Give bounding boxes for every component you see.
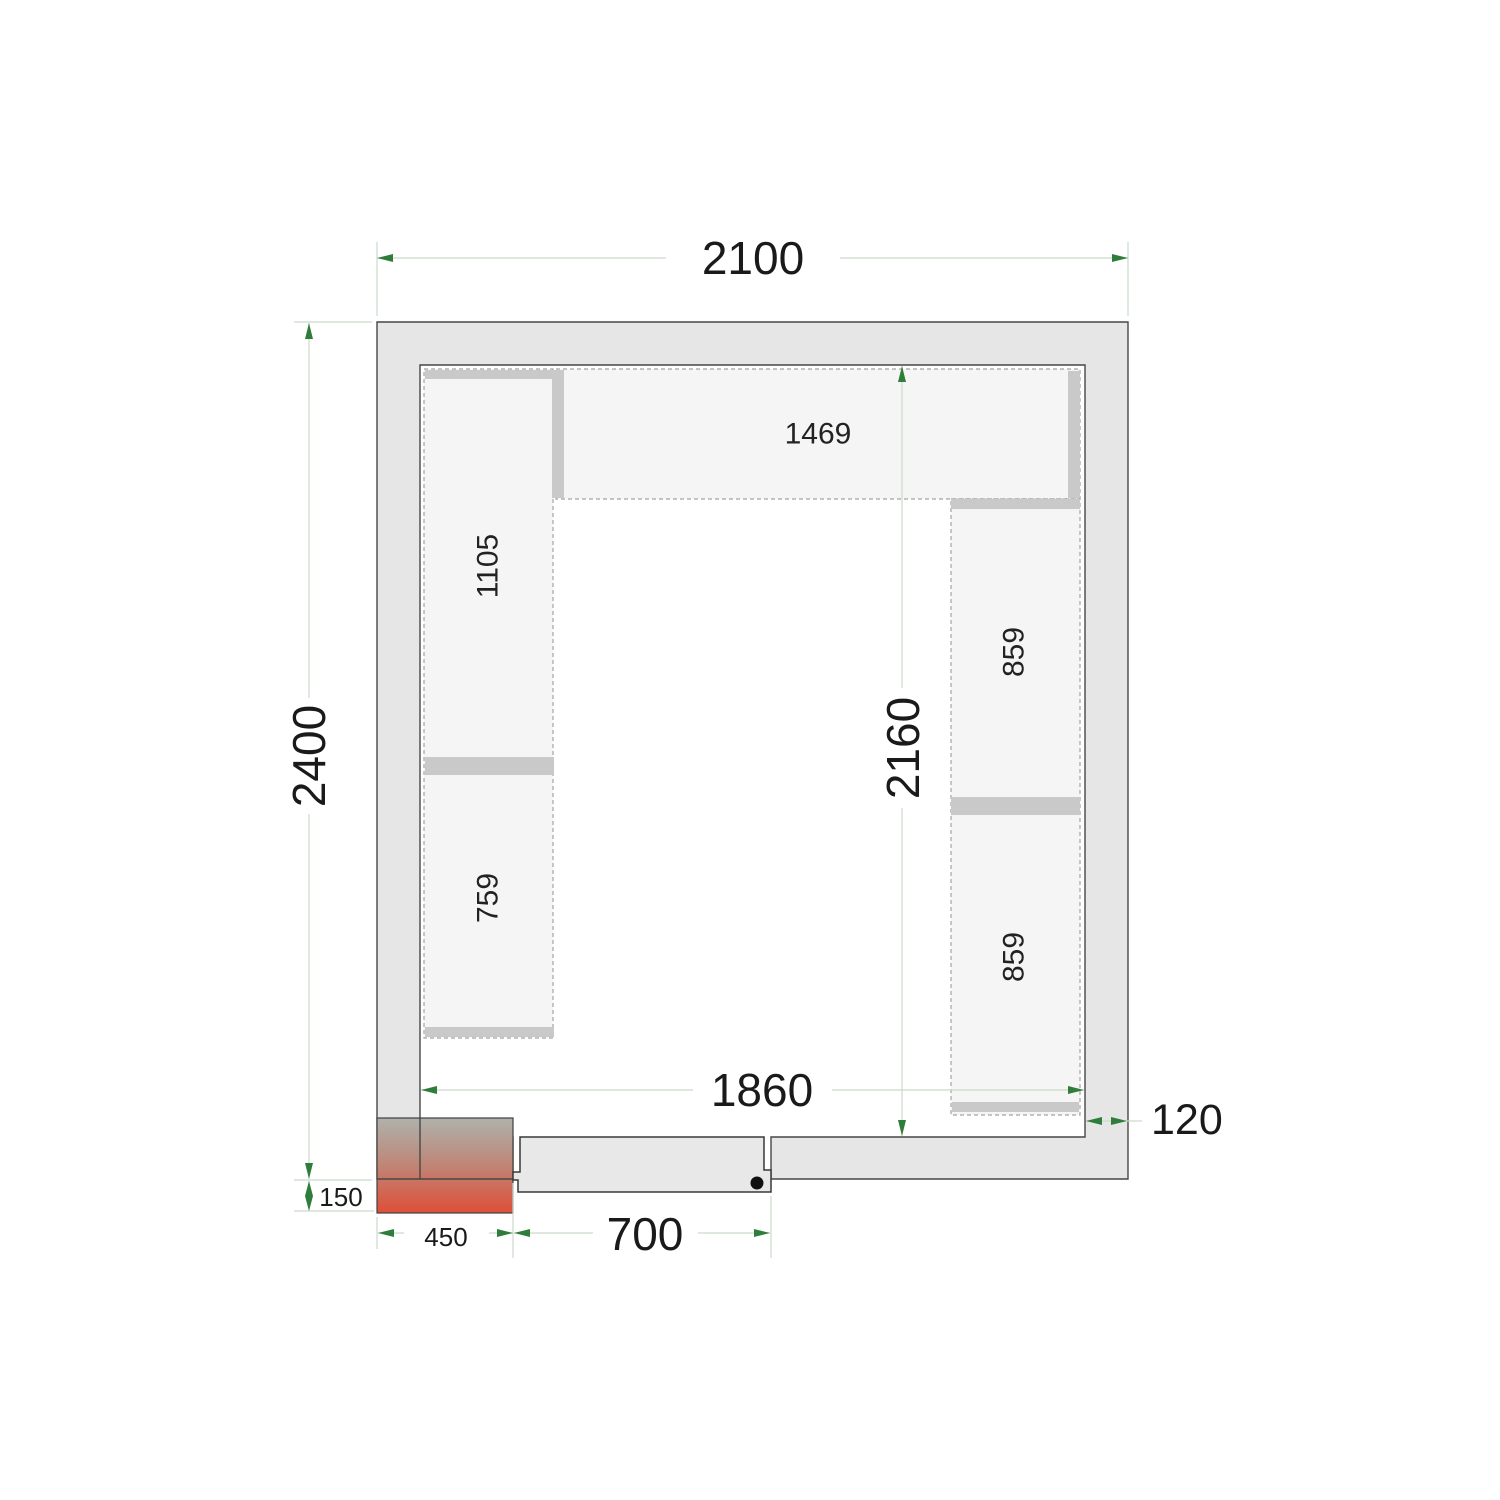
condensing-unit <box>377 1118 513 1213</box>
shelf-support-bar <box>425 1027 554 1037</box>
arrow-left <box>378 1229 394 1237</box>
inner-width-dimension-label: 1860 <box>711 1064 813 1116</box>
shelf-support-bar <box>425 757 554 775</box>
wall-thickness-dimension-label: 120 <box>1151 1096 1223 1144</box>
arrow-down <box>305 1163 313 1179</box>
shelf-support-bar <box>425 370 553 379</box>
arrow-right <box>1112 254 1128 262</box>
outer-width-dimension-label: 2100 <box>702 232 804 284</box>
unit-width-dimension-label: 450 <box>424 1222 467 1252</box>
arrow-left <box>421 1086 437 1094</box>
shelf-support-bar <box>951 797 1080 815</box>
shelf-top-length-label: 1469 <box>785 418 852 451</box>
floor-plan-drawing: 2100 2400 2160 1860 150 450 700 120 1469… <box>0 0 1500 1500</box>
shelf-support-bar <box>952 1102 1079 1112</box>
shelf-left-lower-length-label: 759 <box>472 873 505 923</box>
arrow-down <box>305 1196 313 1211</box>
unit-offset-dimension-label: 150 <box>319 1182 362 1212</box>
door-width-dimension-label: 700 <box>607 1208 684 1260</box>
door-handle-dot <box>751 1177 764 1190</box>
shelf-support-bar <box>552 370 564 498</box>
arrow-down <box>898 1120 906 1136</box>
arrow-left <box>514 1229 530 1237</box>
arrow-right <box>754 1229 770 1237</box>
shelf-right-upper-length-label: 859 <box>998 627 1031 677</box>
arrow-up <box>305 323 313 339</box>
shelf-left-upper-length-label: 1105 <box>472 534 505 599</box>
shelf-right-lower-length-label: 859 <box>998 932 1031 982</box>
arrow-right <box>497 1229 513 1237</box>
door-leaf <box>513 1137 771 1192</box>
shelf-left-column <box>424 369 553 1038</box>
inner-depth-dimension-label: 2160 <box>877 697 929 799</box>
arrow-up <box>305 1181 313 1196</box>
shelf-support-bar <box>951 499 1080 509</box>
floor-plan-canvas: 2100 2400 2160 1860 150 450 700 120 1469… <box>0 0 1500 1500</box>
arrow-left <box>377 254 393 262</box>
shelf-support-bar <box>1068 371 1080 498</box>
outer-depth-dimension-label: 2400 <box>283 705 335 807</box>
